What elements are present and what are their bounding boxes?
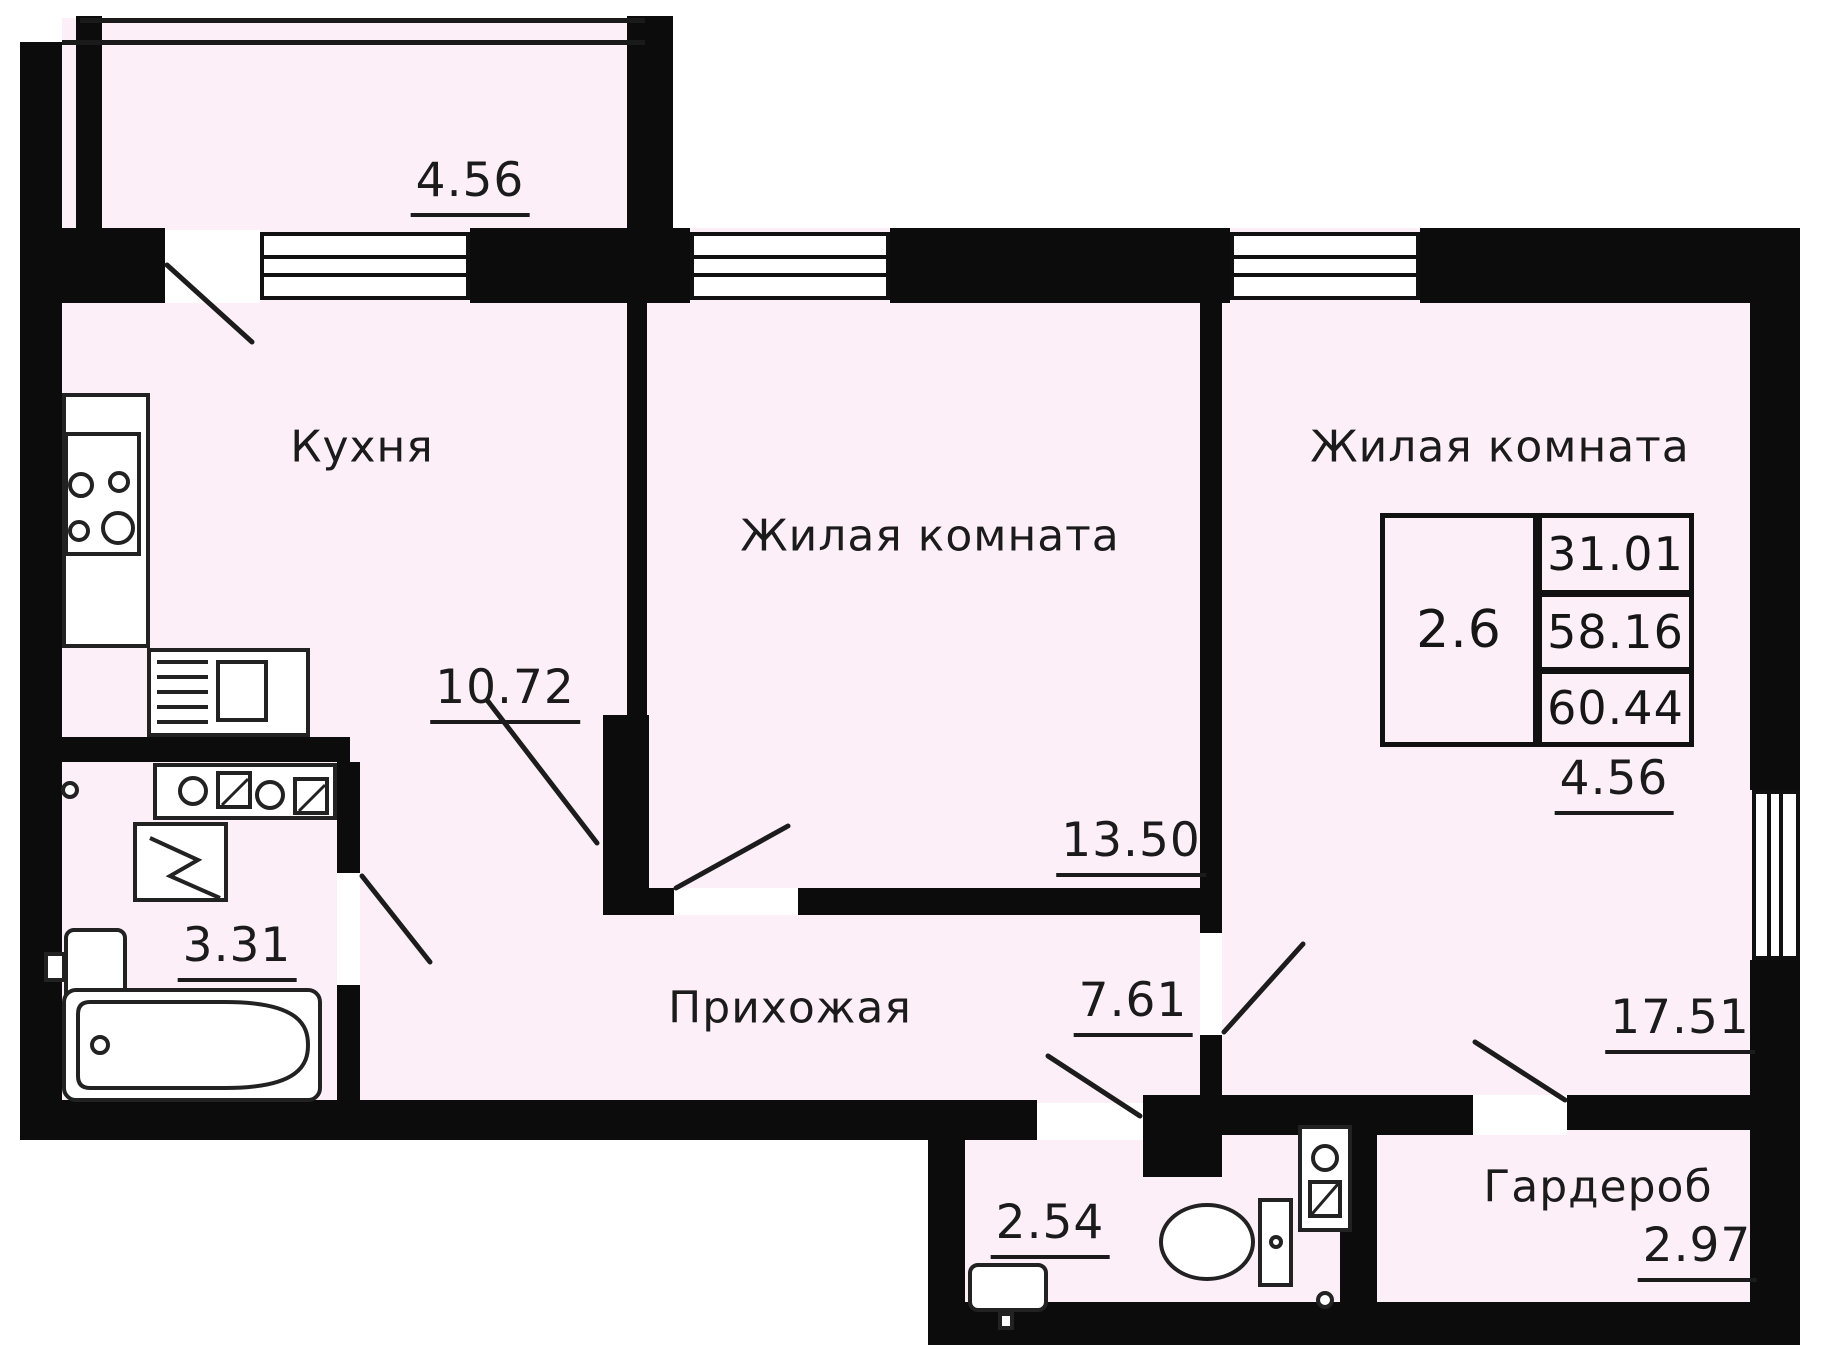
stove-burner-icon (68, 520, 90, 542)
basin-icon (255, 780, 285, 810)
balcony-floor (62, 18, 673, 230)
opening-midroom-door (674, 888, 798, 915)
wall-balcony-right (627, 16, 673, 230)
opening-wc-door (1037, 1103, 1143, 1140)
hallway-label: Прихожая (668, 983, 912, 1034)
stove-burner-icon (68, 472, 94, 498)
loggia-right-area: 4.56 (1555, 751, 1674, 815)
bathroom-area: 3.31 (178, 918, 297, 982)
wall-top-c (890, 228, 1230, 303)
wall-midroom-stub (649, 888, 674, 915)
wall-wc-top-block (1143, 1135, 1222, 1177)
washing-machine (133, 822, 228, 902)
wall-bathroom-right-lower (337, 985, 360, 1100)
floor-plan: Кухня 10.72 Жилая комната 13.50 Жилая ко… (0, 0, 1846, 1362)
living-middle-area: 13.50 (1056, 813, 1206, 877)
kitchen-label: Кухня (290, 422, 434, 473)
floor-drain-icon (1316, 1291, 1334, 1309)
midroom-window (690, 232, 890, 300)
wall-wardrobe-top (1567, 1095, 1750, 1130)
opening-rightroom-door (1200, 933, 1222, 1035)
rightroom-window (1230, 232, 1420, 300)
heater-box-icon (1308, 1180, 1342, 1218)
wc-sink-stub (998, 1312, 1014, 1330)
wall-balcony-post (76, 16, 102, 230)
info-table-living-area: 31.01 (1537, 513, 1694, 595)
wall-top-a (62, 228, 165, 303)
living-middle-label: Жилая комната (740, 511, 1120, 562)
wardrobe-area: 2.97 (1638, 1218, 1757, 1282)
wall-right-lower (1750, 960, 1800, 1317)
door-hinge-icon (61, 781, 79, 799)
wall-bathroom-top (62, 737, 350, 762)
wall-hall-bottom (20, 1100, 1037, 1140)
wall-kitchen-partition-block (603, 715, 649, 915)
living-right-area: 17.51 (1605, 990, 1755, 1054)
hallway-area: 7.61 (1074, 973, 1193, 1037)
wc-area: 2.54 (991, 1195, 1110, 1259)
living-right-label: Жилая комната (1310, 422, 1690, 473)
fridge-icon (157, 660, 208, 724)
basin-icon (178, 776, 208, 806)
balcony-railing-outer (80, 18, 645, 23)
faucet-box-icon (216, 771, 252, 809)
opening-bathroom-door (337, 873, 360, 985)
balcony-area: 4.56 (411, 153, 530, 217)
wall-rooms-partition (1200, 303, 1222, 888)
right-wall-window (1752, 790, 1800, 960)
wall-bathroom-right-upper (337, 762, 360, 873)
opening-wardrobe-door (1473, 1095, 1567, 1135)
info-table-unit: 2.6 (1380, 513, 1538, 747)
kitchen-sink-cabinet (216, 660, 268, 722)
heater-dial-icon (1311, 1144, 1339, 1172)
sink-tap-icon (44, 952, 66, 982)
info-table-total-area: 60.44 (1537, 669, 1694, 747)
wc-sink (968, 1263, 1048, 1312)
wall-rooms-partition-lower (1200, 1035, 1222, 1095)
wall-wc-left (928, 1140, 965, 1302)
wall-top-d (1420, 228, 1800, 303)
wall-midroom-bottom (798, 888, 1222, 915)
toilet-button-icon (1269, 1235, 1283, 1249)
stove-burner-icon (101, 511, 135, 545)
wardrobe-label: Гардероб (1483, 1162, 1712, 1213)
balcony-railing-inner (62, 40, 645, 45)
opening-balcony-door (165, 230, 260, 303)
wall-top-b (470, 228, 690, 303)
kitchen-balcony-window (260, 232, 470, 300)
wall-bottom (928, 1302, 1800, 1345)
bathtub-drain-icon (90, 1035, 110, 1055)
stove-burner-icon (108, 471, 130, 493)
info-table-apartment-area: 58.16 (1537, 592, 1694, 672)
faucet-box-icon (293, 777, 329, 815)
wall-rooms-partition-stub (1200, 915, 1222, 933)
wall-right-upper (1750, 303, 1800, 790)
wall-kitchen-partition (627, 303, 647, 715)
kitchen-area: 10.72 (430, 660, 580, 724)
